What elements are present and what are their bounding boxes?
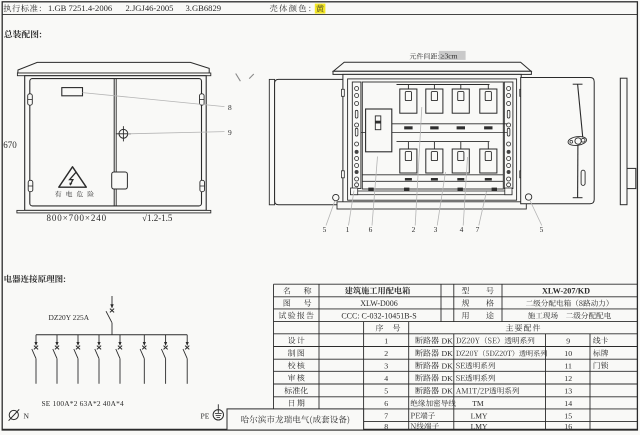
svg-text:3: 3 (434, 225, 438, 234)
svg-text:9: 9 (566, 336, 570, 345)
svg-text:DK: DK (442, 336, 454, 345)
svg-text:DK: DK (442, 361, 454, 370)
svg-text:14: 14 (564, 399, 572, 408)
svg-text:670: 670 (3, 140, 17, 150)
svg-text:15: 15 (564, 411, 572, 420)
svg-text:6: 6 (369, 225, 373, 234)
svg-text:12: 12 (564, 374, 572, 383)
svg-text:16: 16 (564, 422, 572, 431)
svg-text:5: 5 (384, 387, 388, 396)
svg-text:LMY: LMY (471, 422, 488, 431)
svg-text:7: 7 (476, 225, 480, 234)
svg-text:XLW-D006: XLW-D006 (360, 299, 398, 308)
svg-text:1.GB 7251.4-2006: 1.GB 7251.4-2006 (48, 3, 113, 13)
svg-text:1: 1 (346, 225, 350, 234)
svg-text:8: 8 (384, 422, 388, 431)
svg-text:2: 2 (384, 349, 388, 358)
svg-text:1: 1 (384, 336, 388, 345)
svg-text:13: 13 (564, 387, 572, 396)
svg-text:CCC: C-032-10451B-S: CCC: C-032-10451B-S (341, 311, 416, 320)
svg-text:2.JGJ46-2005: 2.JGJ46-2005 (126, 3, 174, 13)
svg-text:DZ20Y 225A: DZ20Y 225A (49, 313, 90, 322)
svg-text:6: 6 (384, 399, 388, 408)
svg-text:PE: PE (201, 412, 210, 421)
svg-text:≥3cm: ≥3cm (440, 52, 457, 61)
svg-text:DK: DK (442, 387, 454, 396)
svg-text:N: N (24, 412, 30, 421)
svg-text:√1.2-1.5: √1.2-1.5 (142, 213, 173, 223)
svg-text:11: 11 (564, 361, 572, 370)
svg-text:4: 4 (460, 225, 464, 234)
svg-text:SE 100A*2 63A*2 40A*4: SE 100A*2 63A*2 40A*4 (42, 399, 125, 408)
svg-text:DK: DK (442, 374, 454, 383)
svg-text:3.GB6829: 3.GB6829 (186, 3, 222, 13)
svg-text:DK: DK (442, 349, 454, 358)
svg-text:800×700×240: 800×700×240 (47, 213, 108, 223)
svg-text:4: 4 (384, 374, 388, 383)
svg-text:5: 5 (540, 225, 544, 234)
svg-text:TM: TM (472, 399, 484, 408)
svg-text:2: 2 (412, 225, 416, 234)
svg-text:10: 10 (564, 349, 572, 358)
svg-text:7: 7 (384, 411, 388, 420)
svg-text:5: 5 (323, 225, 327, 234)
svg-text:XLW-207/KD: XLW-207/KD (542, 287, 590, 296)
svg-text:3: 3 (384, 361, 388, 370)
svg-text:8: 8 (228, 103, 232, 112)
svg-text:9: 9 (228, 128, 232, 137)
svg-text:LMY: LMY (471, 411, 488, 420)
